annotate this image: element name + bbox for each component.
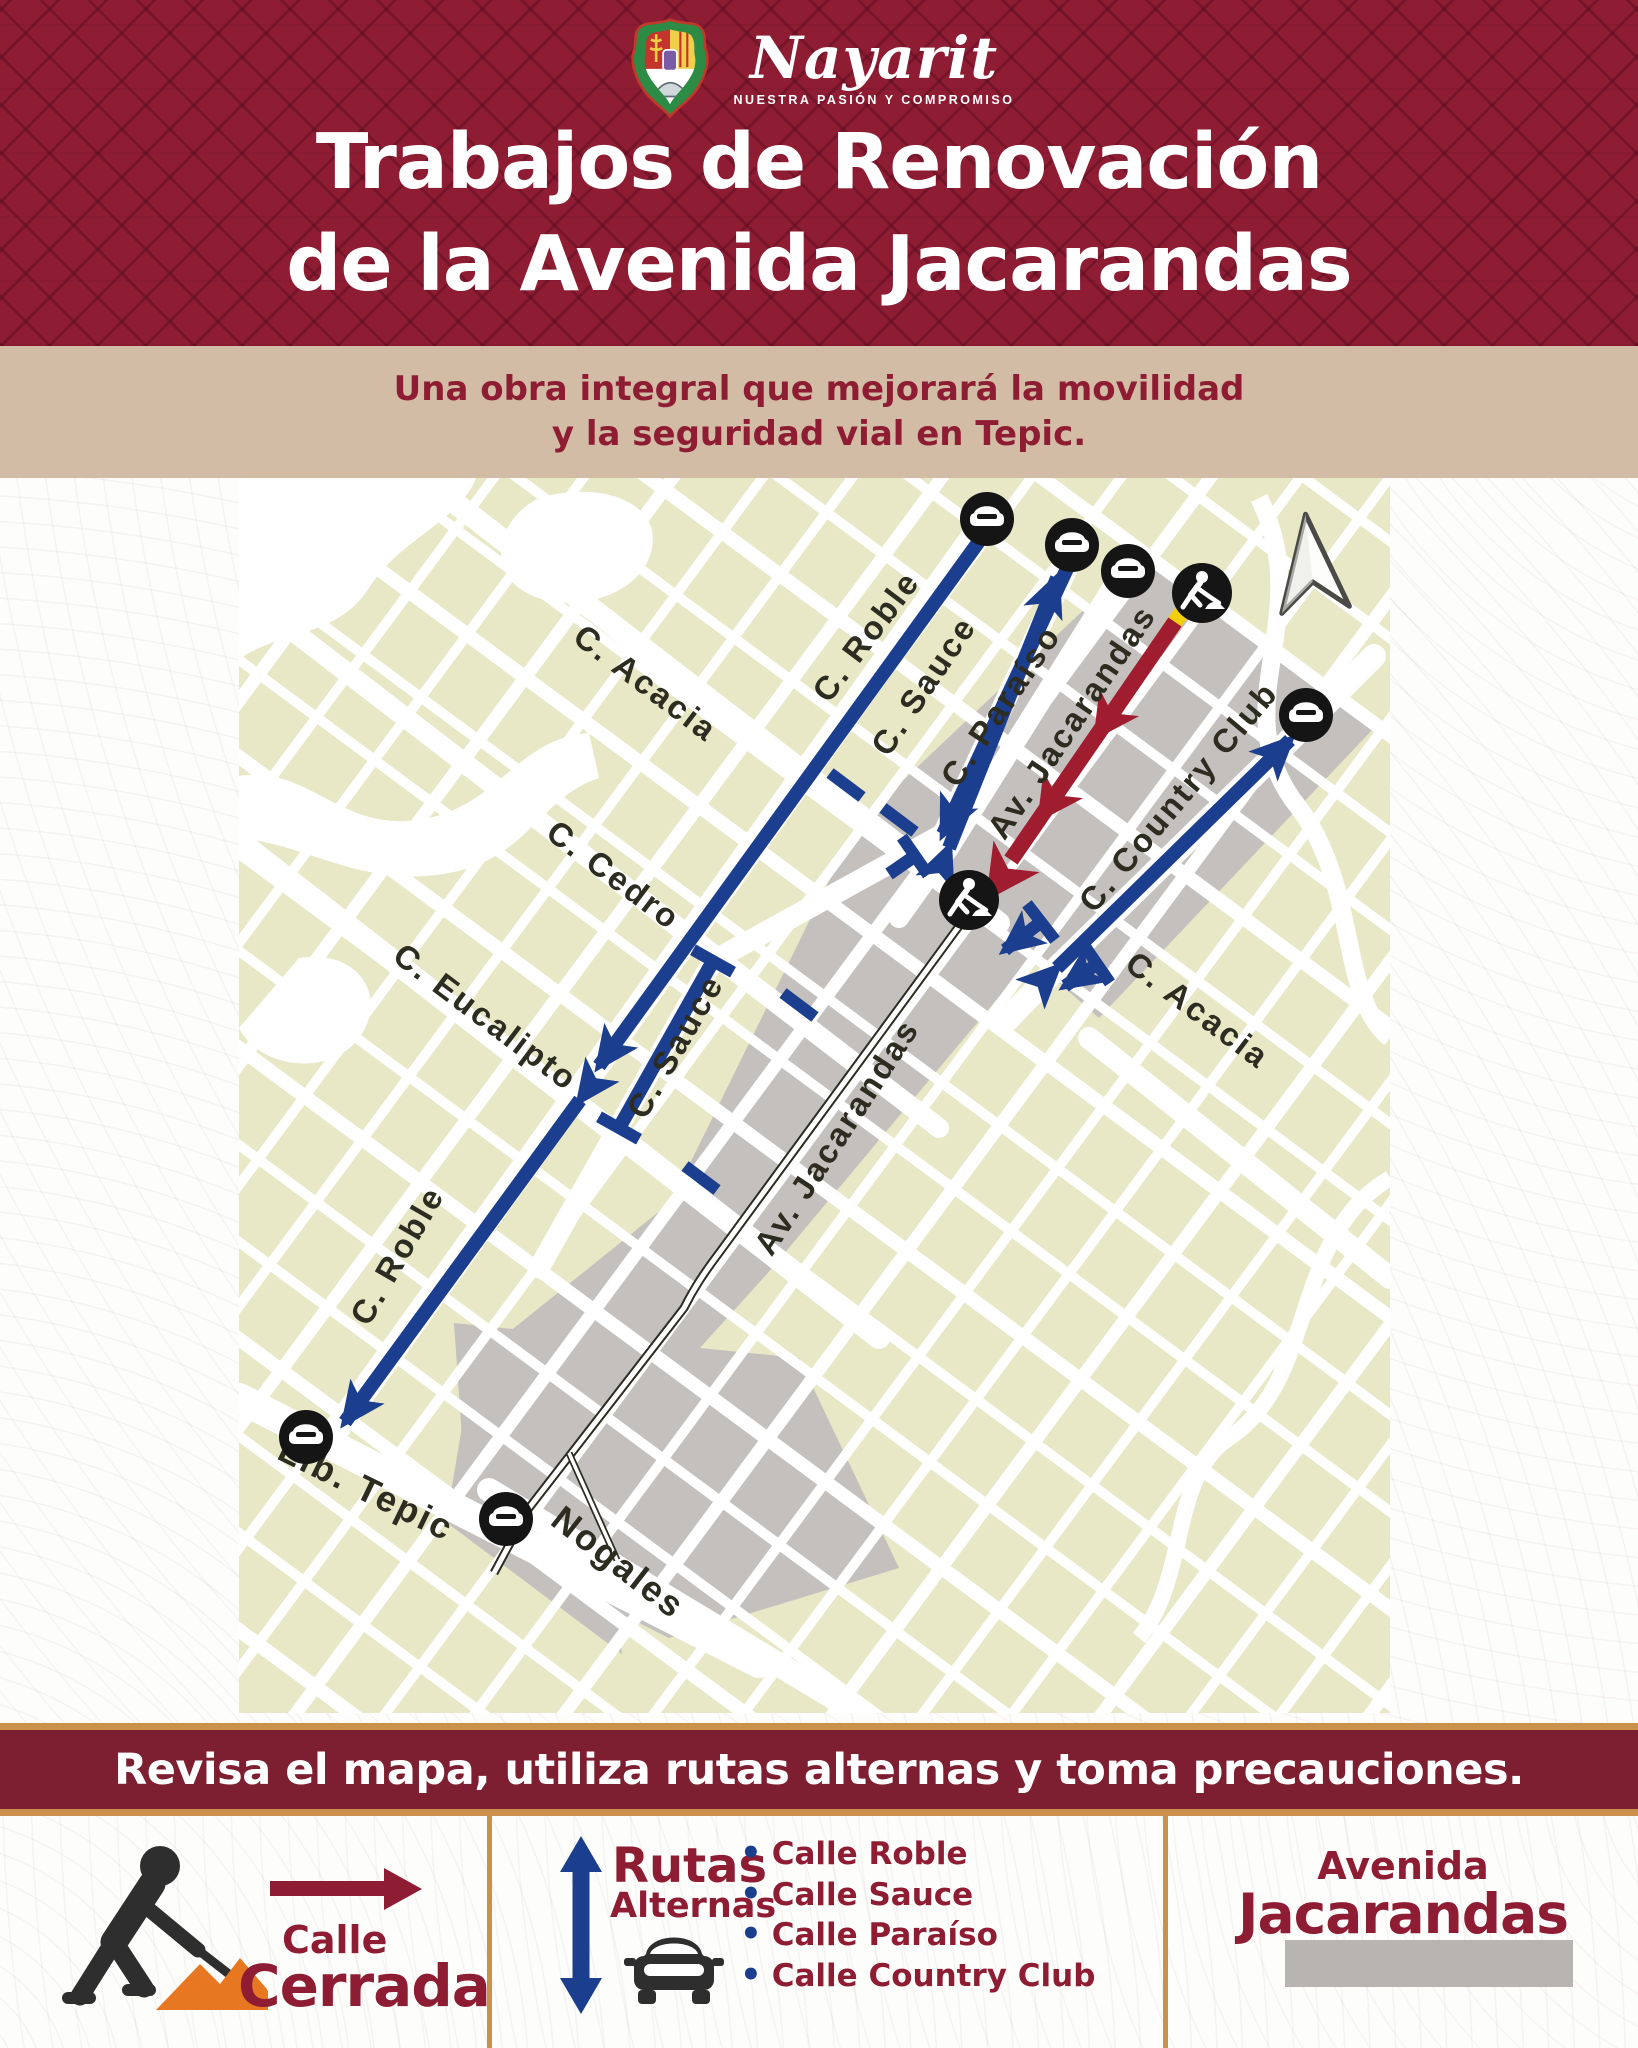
page-title: Trabajos de Renovación de la Avenida Jac…: [0, 112, 1638, 316]
brand-tagline: NUESTRA PASIÓN Y COMPROMISO: [734, 93, 1015, 107]
legend-closed-street: Calle Cerrada: [0, 1816, 487, 2048]
routes-list: Calle Roble Calle Sauce Calle Paraíso Ca…: [740, 1834, 1095, 1996]
map-section: C. Acacia C. Roble C. Sauce C. Paraíso A…: [0, 478, 1638, 1723]
car-icon: [479, 1492, 533, 1546]
closed-label-line2: Cerrada: [238, 1952, 490, 2020]
route-item: Calle Sauce: [740, 1875, 1095, 1916]
title-line-2: de la Avenida Jacarandas: [0, 214, 1638, 316]
construction-worker-icon: [1172, 563, 1232, 623]
subtitle-line-1: Una obra integral que mejorará la movili…: [394, 367, 1245, 412]
subtitle-band: Una obra integral que mejorará la movili…: [0, 346, 1638, 478]
nayarit-crest-icon: [624, 17, 716, 119]
legend-avenue: Avenida Jacarandas: [1168, 1816, 1638, 2048]
header: Nayarit NUESTRA PASIÓN Y COMPROMISO Trab…: [0, 0, 1638, 346]
car-icon: [960, 492, 1014, 546]
route-item: Calle Paraíso: [740, 1915, 1095, 1956]
car-front-icon: [624, 1920, 724, 2010]
gray-street-swatch: [1285, 1940, 1573, 1987]
construction-worker-icon: [939, 870, 999, 930]
banner-text: Revisa el mapa, utiliza rutas alternas y…: [114, 1745, 1524, 1795]
title-line-1: Trabajos de Renovación: [0, 112, 1638, 214]
closed-direction-arrow-icon: [270, 1868, 422, 1910]
legend-alternate-routes: Rutas Alternas Calle Roble Calle Sauce C…: [487, 1816, 1168, 2048]
car-icon: [1279, 688, 1333, 742]
brand-name: Nayarit: [750, 29, 998, 87]
subtitle-line-2: y la seguridad vial en Tepic.: [552, 412, 1086, 457]
infographic-poster: Nayarit NUESTRA PASIÓN Y COMPROMISO Trab…: [0, 0, 1638, 2048]
car-icon: [1045, 518, 1099, 572]
worker-digging-icon: [28, 1838, 268, 2018]
car-icon: [279, 1410, 333, 1464]
map-canvas: C. Acacia C. Roble C. Sauce C. Paraíso A…: [239, 478, 1390, 1713]
two-way-arrow-icon: [558, 1836, 604, 2014]
route-item: Calle Country Club: [740, 1956, 1095, 1997]
warning-banner: Revisa el mapa, utiliza rutas alternas y…: [0, 1723, 1638, 1816]
avenue-label-line2: Jacarandas: [1168, 1882, 1638, 1946]
legend: Calle Cerrada Rutas Alternas: [0, 1816, 1638, 2048]
state-logo: Nayarit NUESTRA PASIÓN Y COMPROMISO: [0, 16, 1638, 120]
city-map: C. Acacia C. Roble C. Sauce C. Paraíso A…: [239, 478, 1390, 1713]
car-icon: [1101, 544, 1155, 598]
route-item: Calle Roble: [740, 1834, 1095, 1875]
